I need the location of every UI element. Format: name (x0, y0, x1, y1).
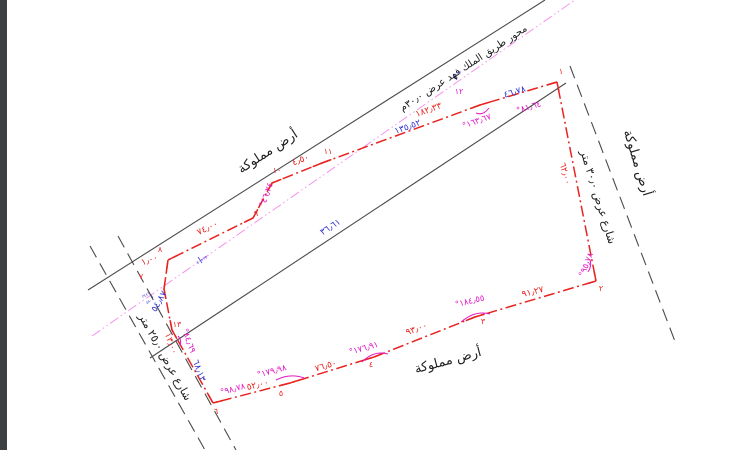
survey-plan-drawing (0, 0, 750, 450)
survey-plan-canvas: أرض مملوكةمحور طريق الملك فهد عرض ٣٠٫٠مأ… (0, 0, 750, 450)
street-left-edge-inner-dashed (118, 236, 236, 450)
page-edge-strip (0, 0, 7, 450)
angle-arcs (178, 108, 591, 380)
street-left-edge-outer-dashed (90, 246, 205, 450)
road-edge-north-line (88, 0, 545, 290)
corner-ticks (164, 82, 596, 403)
road-edge-south-line (150, 83, 566, 358)
street-right-edge-dashed (570, 66, 676, 344)
